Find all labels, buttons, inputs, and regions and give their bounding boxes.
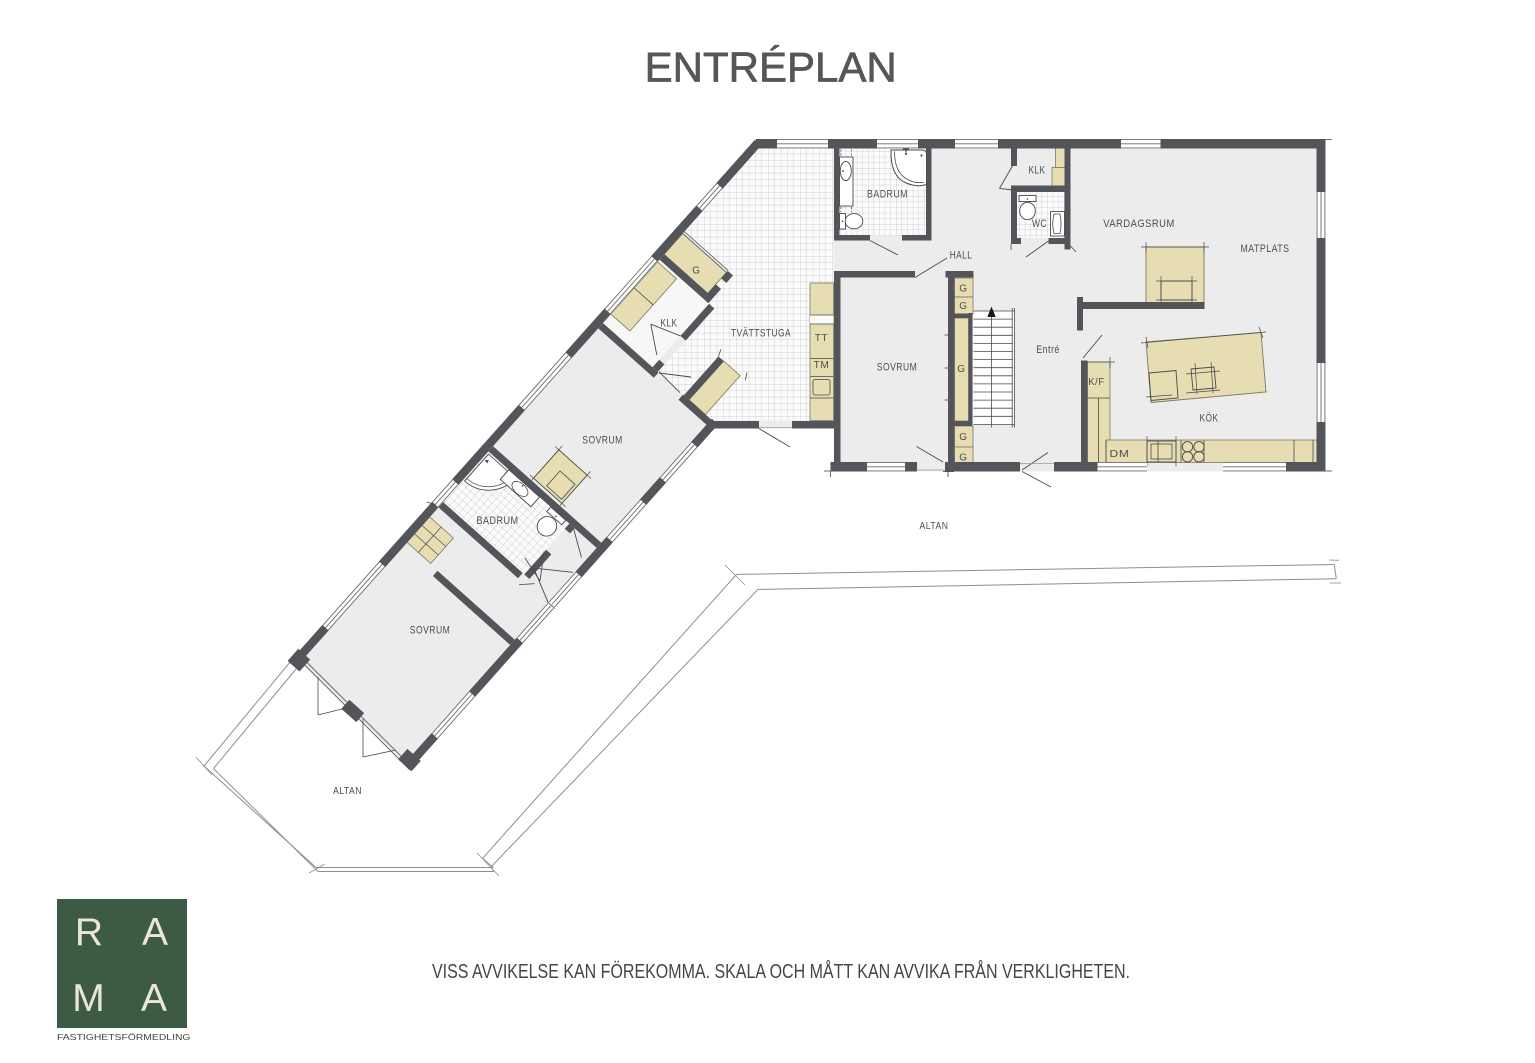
svg-text:SOVRUM: SOVRUM (410, 625, 451, 637)
svg-text:SOVRUM: SOVRUM (582, 435, 623, 447)
svg-text:KLK: KLK (1029, 165, 1046, 177)
svg-text:TT: TT (815, 333, 828, 344)
svg-text:KLK: KLK (661, 318, 678, 330)
svg-text:G: G (959, 301, 967, 312)
svg-text:G: G (957, 364, 965, 375)
svg-text:ALTAN: ALTAN (920, 520, 949, 532)
svg-text:G: G (959, 453, 967, 464)
svg-text:DM: DM (1110, 448, 1130, 460)
svg-text:KÖK: KÖK (1200, 413, 1219, 425)
svg-text:G: G (692, 266, 700, 277)
svg-text:VISS AVVIKELSE KAN FÖREKOMMA.: VISS AVVIKELSE KAN FÖREKOMMA. SKALA OCH … (432, 960, 1130, 983)
svg-text:K/F: K/F (1088, 376, 1105, 388)
svg-text:VARDAGSRUM: VARDAGSRUM (1103, 218, 1175, 230)
svg-text:Entré: Entré (1036, 344, 1060, 356)
svg-text:MATPLATS: MATPLATS (1241, 243, 1290, 255)
svg-text:G: G (959, 284, 967, 295)
svg-text:BADRUM: BADRUM (477, 515, 519, 527)
svg-text:ALTAN: ALTAN (333, 785, 362, 797)
svg-text:WC: WC (1032, 218, 1047, 230)
svg-text:R: R (75, 911, 103, 954)
svg-text:SOVRUM: SOVRUM (877, 362, 918, 374)
svg-text:FASTIGHETSFÖRMEDLING: FASTIGHETSFÖRMEDLING (57, 1032, 191, 1042)
svg-text:M: M (72, 977, 105, 1020)
svg-text:TVÄTTSTUGA: TVÄTTSTUGA (731, 328, 791, 340)
svg-text:HALL: HALL (950, 250, 973, 262)
svg-text:BADRUM: BADRUM (867, 189, 908, 201)
svg-text:A: A (141, 977, 167, 1020)
svg-text:TM: TM (814, 360, 830, 371)
svg-text:G: G (959, 432, 967, 443)
svg-text:A: A (142, 911, 168, 954)
svg-text:ENTRÉPLAN: ENTRÉPLAN (645, 44, 897, 91)
